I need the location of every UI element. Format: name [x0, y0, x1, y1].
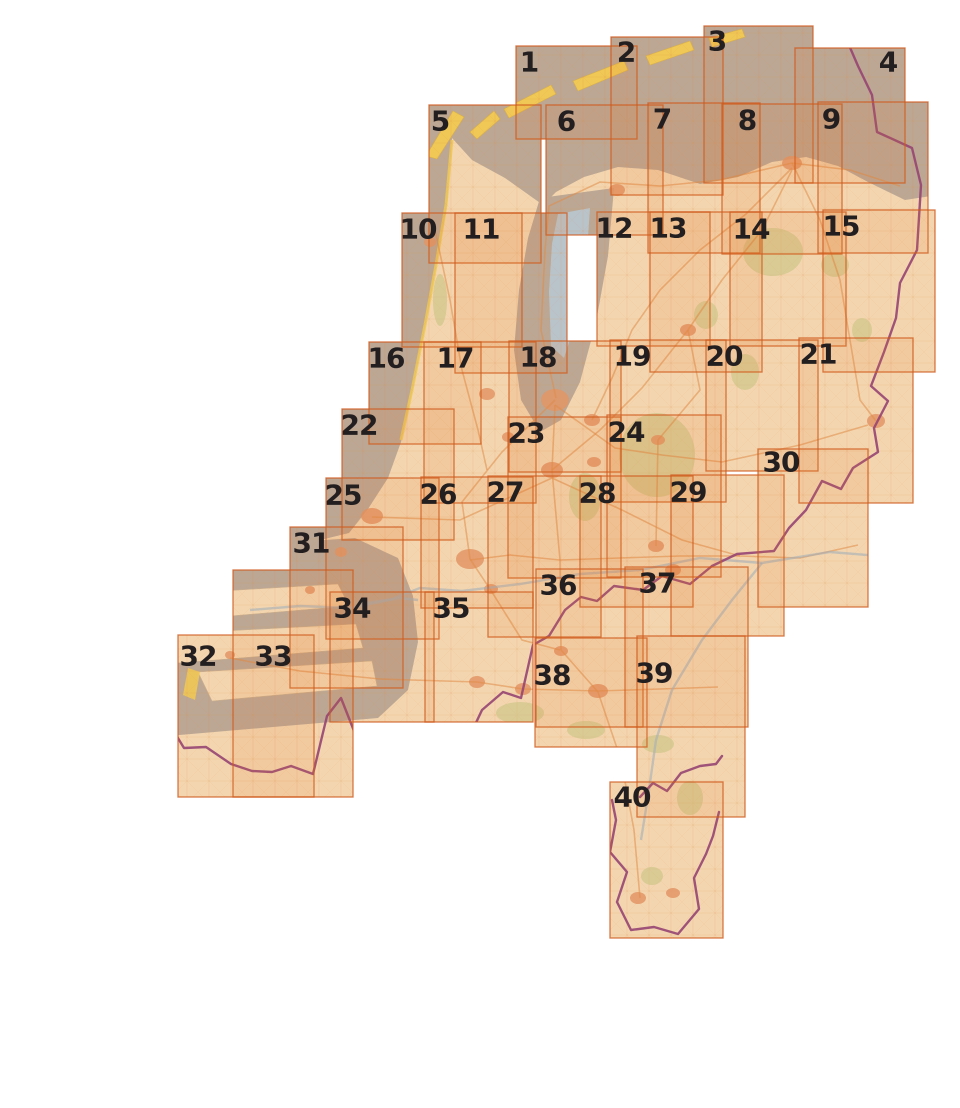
dune-patch [158, 590, 177, 622]
netherlands-sheet-index-map: 1234567891011121314151617181920212223242… [0, 0, 960, 1108]
dune-patch [153, 632, 172, 664]
sheet-rect-34[interactable] [330, 592, 434, 722]
sheet-rect-40[interactable] [610, 782, 723, 938]
sheet-index-page: 1234567891011121314151617181920212223242… [0, 0, 960, 1108]
sheet-rect-38[interactable] [535, 638, 647, 747]
sheet-index-svg: 1234567891011121314151617181920212223242… [0, 0, 960, 1108]
sheet-rectangles [178, 26, 935, 938]
sheet-rect-30[interactable] [758, 449, 868, 607]
sheet-rect-35[interactable] [425, 592, 533, 722]
